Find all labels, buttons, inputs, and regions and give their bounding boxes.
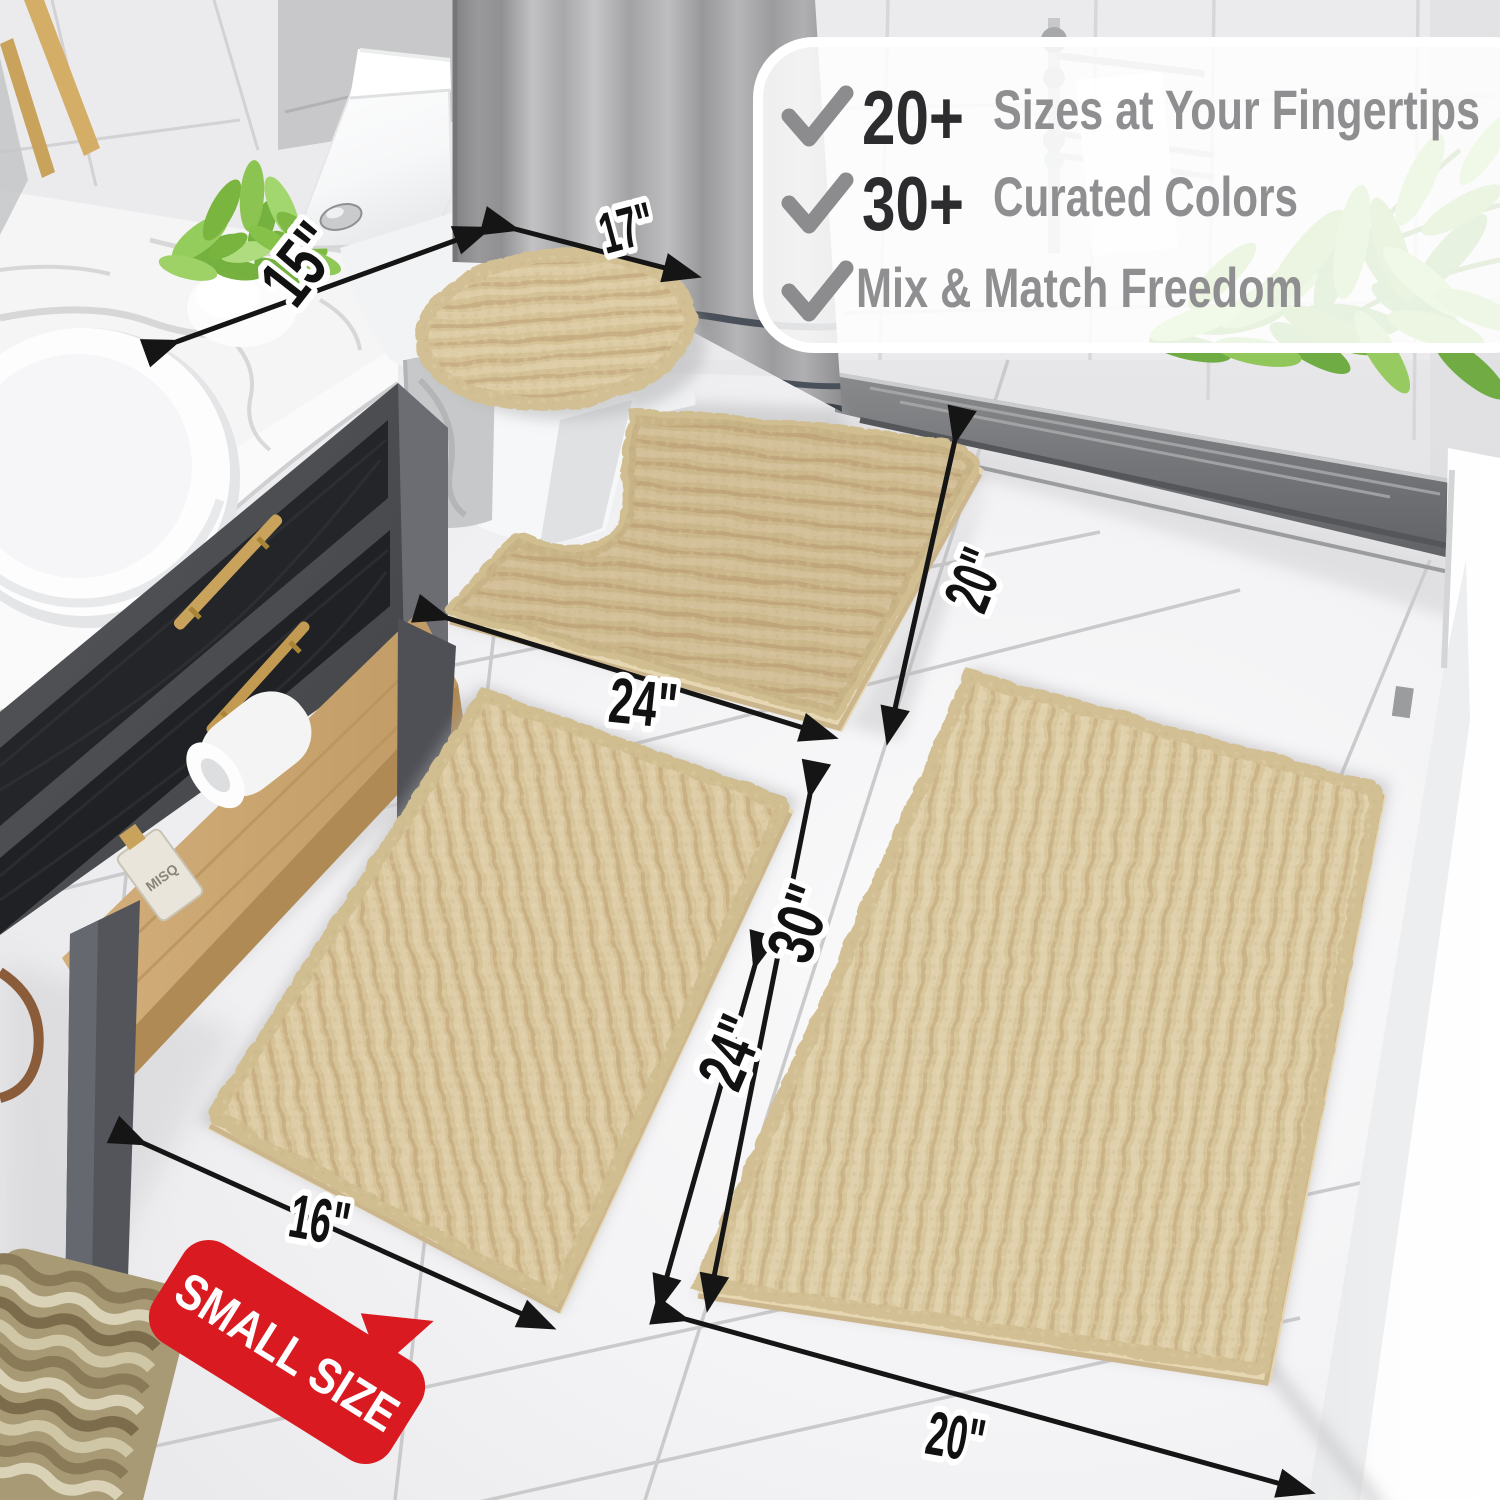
svg-text:30+: 30+ [862, 162, 964, 247]
svg-text:Curated Colors: Curated Colors [993, 165, 1298, 228]
svg-text:20+: 20+ [862, 76, 964, 161]
svg-text:20": 20" [921, 1399, 990, 1477]
svg-text:Mix & Match Freedom: Mix & Match Freedom [856, 256, 1303, 319]
svg-text:Sizes at Your Fingertips: Sizes at Your Fingertips [993, 78, 1480, 141]
svg-text:24": 24" [606, 664, 681, 743]
svg-text:16": 16" [284, 1182, 355, 1260]
